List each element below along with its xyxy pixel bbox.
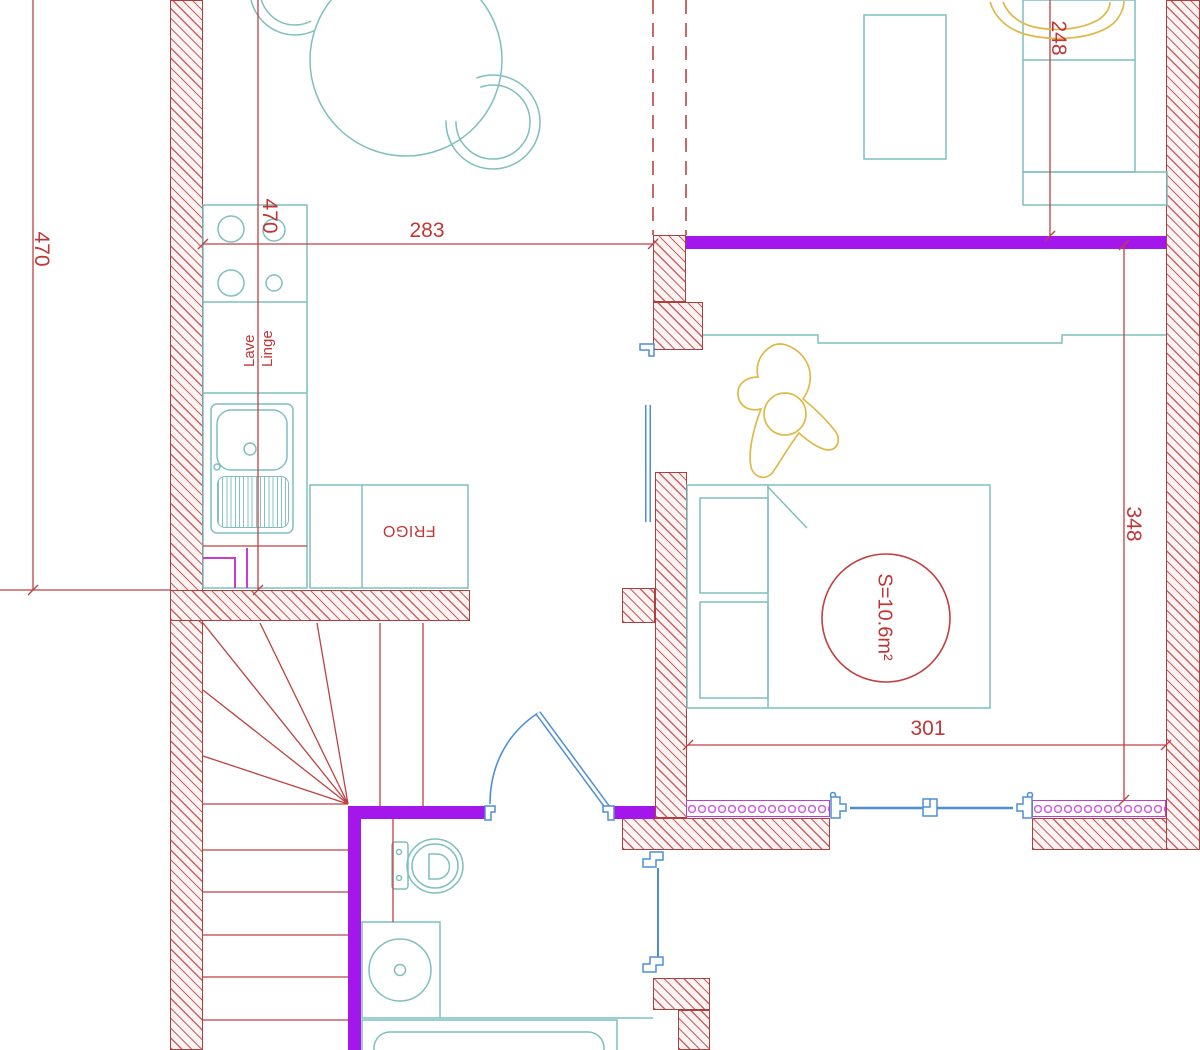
sofa <box>1023 0 1167 205</box>
dim-left-wall-470: 470 <box>29 231 53 266</box>
stair-magenta-detail <box>203 548 247 588</box>
dining-table <box>310 0 502 156</box>
dim-living-248: 248 <box>1046 20 1070 55</box>
kitchen-sink <box>211 404 293 533</box>
yellow-figures-layer <box>738 1 1124 477</box>
bedroom-windows <box>831 793 1033 819</box>
coffee-table <box>864 15 946 159</box>
bed <box>687 485 990 708</box>
washbasin <box>362 922 440 1018</box>
dim-bedroom-301: 301 <box>910 717 945 741</box>
fridge-label: FRIGO <box>382 521 435 539</box>
wardrobe-line <box>703 335 1166 343</box>
openings-layer <box>485 344 1033 972</box>
person-figure <box>738 344 838 477</box>
stairs <box>203 623 423 1020</box>
bedroom-area-label: S=10.6m² <box>873 573 896 660</box>
kitchen-detail-lines <box>203 546 393 922</box>
dimensions-and-stairs-layer <box>0 0 1171 1020</box>
dimension-lines <box>0 0 1171 805</box>
plumbing-riser <box>643 852 663 972</box>
hall-door <box>485 713 614 820</box>
dim-kitchen-470: 470 <box>257 198 281 233</box>
bedroom-door <box>640 344 654 522</box>
bathtub <box>362 1018 653 1050</box>
washing-machine-label: Lave Linge <box>241 321 277 367</box>
floor-plan: 470 470 283 248 348 301 S=10.6m² Lave Li… <box>0 0 1200 1050</box>
dim-bedroom-348: 348 <box>1121 506 1145 541</box>
plan-linework <box>0 0 1200 1050</box>
dining-chairs <box>250 0 540 169</box>
projection-dashed-lines <box>653 0 686 235</box>
toilet <box>392 839 463 893</box>
dim-hall-283: 283 <box>409 219 444 243</box>
